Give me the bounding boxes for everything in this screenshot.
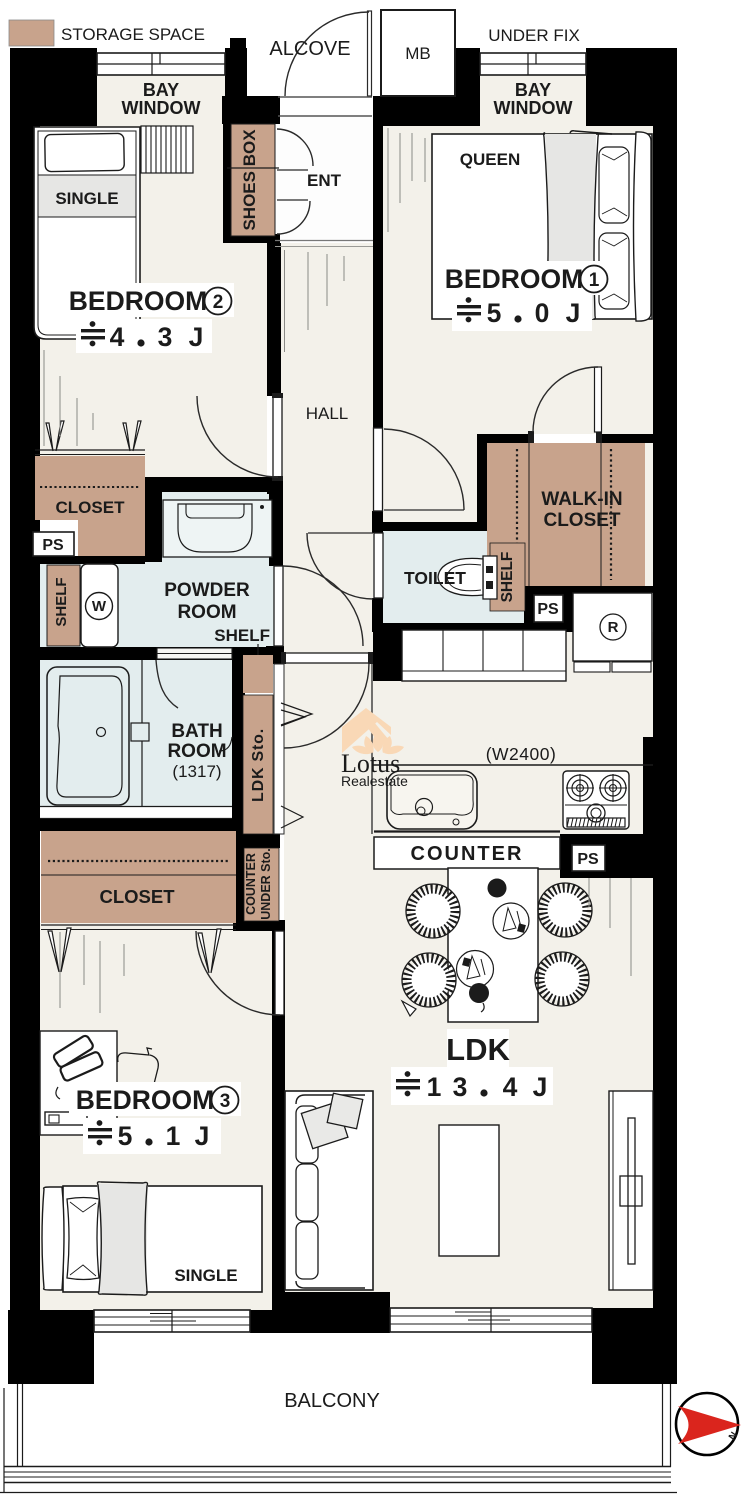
svg-text:2: 2 [213,292,224,313]
svg-text:SINGLE: SINGLE [174,1266,237,1285]
svg-text:(W2400): (W2400) [486,744,557,764]
svg-text:SHELF: SHELF [499,552,516,603]
svg-text:(1317): (1317) [172,762,221,781]
svg-text:J: J [189,322,204,352]
svg-text:3: 3 [453,1072,468,1102]
svg-text:J: J [533,1072,548,1102]
svg-text:ROOM: ROOM [167,741,226,762]
svg-text:WINDOW: WINDOW [122,98,201,118]
svg-text:QUEEN: QUEEN [460,150,520,169]
svg-text:Realestate: Realestate [341,773,408,789]
svg-text:5: 5 [487,298,502,328]
svg-text:BATH: BATH [171,721,222,742]
svg-text:BAY: BAY [143,80,179,100]
svg-text:3: 3 [158,322,173,352]
svg-text:WINDOW: WINDOW [494,98,573,118]
svg-text:PS: PS [42,537,64,554]
svg-text:COUNTER: COUNTER [411,843,524,865]
svg-text:BALCONY: BALCONY [284,1390,380,1412]
svg-text:UNDER Sto.: UNDER Sto. [259,848,273,920]
svg-text:POWDER: POWDER [164,580,250,601]
svg-text:ALCOVE: ALCOVE [269,38,350,60]
svg-text:BEDROOM: BEDROOM [69,286,207,316]
svg-text:SHELF: SHELF [214,626,270,645]
svg-text:CLOSET: CLOSET [543,510,620,531]
svg-text:LDK: LDK [446,1032,510,1067]
svg-text:COUNTER: COUNTER [244,853,258,915]
svg-text:TOILET: TOILET [404,568,466,588]
svg-text:ENT: ENT [307,171,342,190]
svg-text:ROOM: ROOM [177,602,236,623]
svg-text:WALK-IN: WALK-IN [541,489,622,510]
svg-text:R: R [608,619,619,636]
svg-text:BEDROOM: BEDROOM [445,264,583,294]
svg-text:0: 0 [535,298,550,328]
svg-text:W: W [92,598,107,615]
svg-text:UNDER FIX: UNDER FIX [488,26,580,45]
svg-text:HALL: HALL [306,404,349,423]
svg-text:1: 1 [427,1072,442,1102]
svg-text:PS: PS [537,601,559,618]
svg-text:J: J [566,298,581,328]
svg-text:SHOES BOX: SHOES BOX [240,129,259,231]
svg-text:STORAGE SPACE: STORAGE SPACE [61,25,205,44]
svg-text:1: 1 [166,1121,181,1151]
svg-text:LDK Sto.: LDK Sto. [250,728,267,802]
svg-text:1: 1 [589,270,600,291]
svg-text:SHELF: SHELF [53,577,70,626]
svg-text:CLOSET: CLOSET [99,886,175,907]
svg-text:CLOSET: CLOSET [56,498,126,517]
svg-text:BEDROOM: BEDROOM [76,1085,214,1115]
svg-text:4: 4 [503,1072,518,1102]
svg-text:5: 5 [118,1121,133,1151]
svg-text:PS: PS [577,851,599,868]
svg-text:J: J [195,1121,210,1151]
svg-text:3: 3 [220,1091,231,1112]
svg-text:MB: MB [405,44,431,63]
svg-text:4: 4 [110,322,125,352]
svg-text:SINGLE: SINGLE [55,189,118,208]
svg-text:BAY: BAY [515,80,551,100]
